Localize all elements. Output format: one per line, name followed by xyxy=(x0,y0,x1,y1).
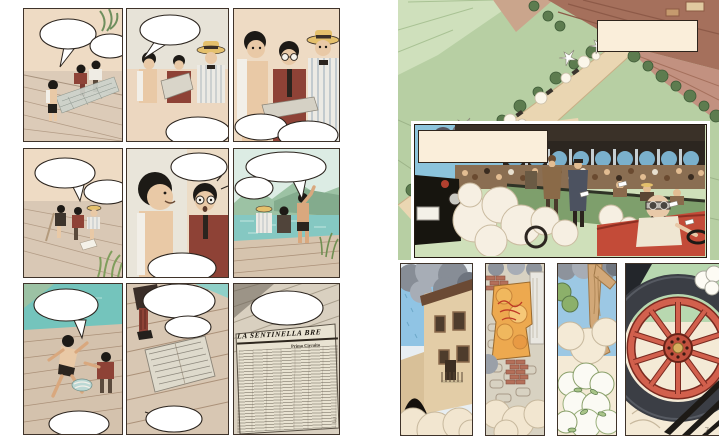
panel-boys-seated xyxy=(23,148,123,278)
panel-art xyxy=(558,264,616,435)
speech-bubble xyxy=(84,180,122,204)
building-facade xyxy=(420,279,472,414)
speech-bubble xyxy=(171,153,227,181)
caption-box-middle xyxy=(418,130,548,163)
panel-trio-closeup xyxy=(233,8,340,142)
striped-bundle xyxy=(72,379,92,391)
panel-overlay xyxy=(234,284,339,434)
panel-boys-hauling-net xyxy=(23,8,123,142)
panel-art xyxy=(24,284,122,434)
panel-torn-poster xyxy=(485,263,545,436)
speech-bubble xyxy=(90,34,122,58)
black-car xyxy=(415,175,461,245)
panel-newspaper-left xyxy=(126,283,229,435)
caption-box-top xyxy=(597,20,698,52)
panel-red-wheel xyxy=(625,263,719,436)
speech-bubble xyxy=(251,291,323,325)
panel-art xyxy=(127,284,228,434)
panel-pointing-lake xyxy=(233,148,340,278)
speech-bubble xyxy=(49,411,109,434)
panel-boy-dashing xyxy=(23,283,123,435)
torn-poster xyxy=(492,282,532,360)
panel-newspaper-closeup: LA SENTINELLA BRE Primo Circuito xyxy=(233,283,340,435)
panel-art xyxy=(24,9,122,141)
panel-teasing-closeup xyxy=(126,148,229,278)
panel-art xyxy=(24,149,122,277)
speech-bubble xyxy=(145,406,202,432)
panel-village-building xyxy=(400,263,473,436)
speech-bubble xyxy=(165,316,211,338)
panel-tree-bush xyxy=(557,263,617,436)
speech-bubble xyxy=(143,284,215,318)
panel-art xyxy=(486,264,544,435)
panel-art xyxy=(234,149,339,277)
panel-trio-talking xyxy=(126,8,229,142)
flowering-bush xyxy=(558,363,616,435)
panel-art xyxy=(127,9,228,141)
panel-art xyxy=(401,264,472,435)
straw-hat-boy xyxy=(197,41,225,103)
dust-clouds xyxy=(401,408,472,435)
panel-art xyxy=(626,264,719,435)
panel-art xyxy=(127,149,228,277)
comic-spread: LA SENTINELLA BRE Primo Circuito 3 xyxy=(0,0,719,440)
license-plate xyxy=(417,207,439,220)
panel-art xyxy=(234,9,339,141)
speech-bubble xyxy=(235,177,273,199)
hub-cap xyxy=(673,343,683,353)
farm-buildings xyxy=(686,2,704,11)
